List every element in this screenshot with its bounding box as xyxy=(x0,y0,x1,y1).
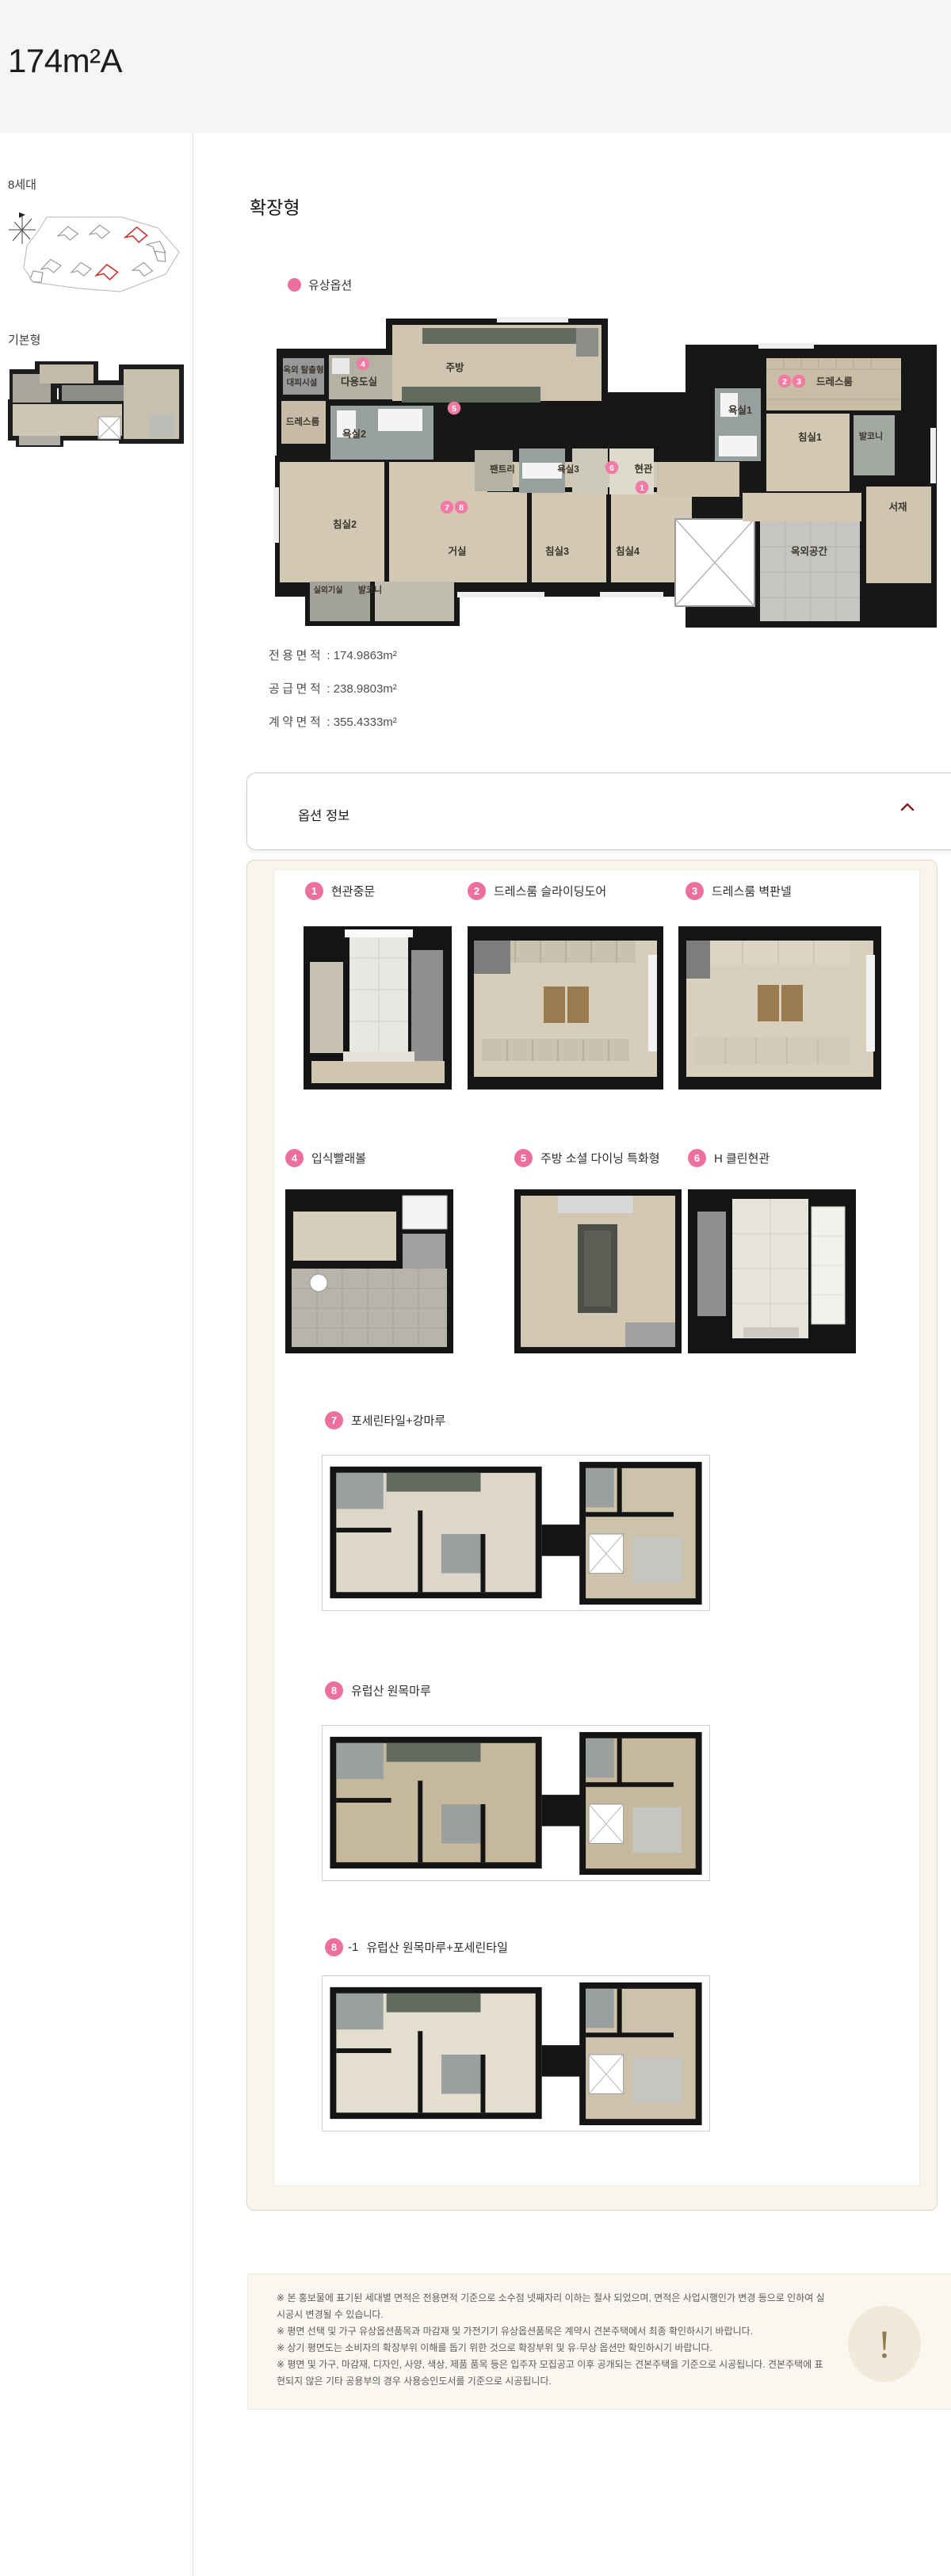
room-label-escape-2: 대피시설 xyxy=(287,377,318,387)
option-label-2: 2드레스룸 슬라이딩도어 xyxy=(468,881,606,900)
option-label-4: 4입식빨래볼 xyxy=(285,1148,366,1167)
plan-type-heading: 확장형 xyxy=(250,193,300,219)
option-label-text: 드레스룸 슬라이딩도어 xyxy=(494,883,606,899)
option-image-5 xyxy=(514,1189,682,1353)
plan-marker-2: 2 xyxy=(778,375,792,388)
room-label-living: 거실 xyxy=(448,545,466,557)
option-label-5: 5주방 소셜 다이닝 특화형 xyxy=(514,1148,660,1167)
room-label-outdoor: 옥외공간 xyxy=(791,545,828,557)
option-number-badge: 1 xyxy=(305,882,323,900)
sidebar-base-label: 기본형 xyxy=(8,331,40,348)
option-number-badge: 4 xyxy=(285,1149,304,1167)
area-value: 355.4333m² xyxy=(334,716,397,729)
area-row-contract: 계약면적 : 355.4333m² xyxy=(269,713,397,730)
option-label-text: H 클린현관 xyxy=(714,1150,770,1166)
room-label-bath2: 욕실2 xyxy=(342,428,366,440)
option-image-1 xyxy=(304,926,452,1090)
svg-text:4: 4 xyxy=(361,360,365,369)
option-label-text: 드레스룸 벽판넬 xyxy=(712,883,792,899)
option-number-badge: 7 xyxy=(325,1411,343,1429)
room-label-bath1: 욕실1 xyxy=(728,404,752,416)
area-label: 계약면적 xyxy=(269,716,323,729)
site-plan-map xyxy=(3,204,187,307)
option-label-text: 유럽산 원목마루+포세린타일 xyxy=(366,1939,508,1956)
area-label: 공급면적 xyxy=(269,682,323,696)
chevron-up-icon[interactable] xyxy=(900,802,915,811)
exclamation-badge: ! xyxy=(848,2306,921,2382)
area-sep: : xyxy=(323,649,334,662)
room-label-bed2: 침실2 xyxy=(333,518,357,530)
plan-marker-5: 5 xyxy=(448,402,461,415)
sidebar-site-label: 8세대 xyxy=(8,176,36,193)
main-floor-plan: 옥외 탈출형 대피시설 다용도실 주방 드레스룸 욕실2 팬트리 욕실3 현관 … xyxy=(267,317,941,628)
disclaimer-line: ※ 평면 선택 및 가구 유상옵션품목과 마감재 및 가전기기 유상옵션품목은 … xyxy=(277,2323,831,2340)
room-label-kitchen: 주방 xyxy=(445,361,464,373)
room-label-bed1: 침실1 xyxy=(798,431,822,443)
option-label-8-1: 8-1유럽산 원목마루+포세린타일 xyxy=(325,1937,508,1956)
disclaimer-line: ※ 평면 및 가구, 마감재, 디자인, 사양, 색상, 제품 품목 등은 입주… xyxy=(277,2357,831,2390)
page-header xyxy=(0,0,951,133)
option-number-badge: 8 xyxy=(325,1938,343,1956)
option-number-badge: 2 xyxy=(468,882,486,900)
svg-text:6: 6 xyxy=(609,464,614,473)
area-value: 238.9803m² xyxy=(334,682,397,696)
plan-marker-3: 3 xyxy=(792,375,806,388)
disclaimer-line: ※ 본 홍보물에 표기된 세대별 면적은 전용면적 기준으로 소수점 넷째자리 … xyxy=(277,2290,831,2323)
paid-option-legend-label: 유상옵션 xyxy=(308,277,352,293)
area-label: 전용면적 xyxy=(269,649,323,662)
svg-text:1: 1 xyxy=(640,483,644,493)
room-label-ac-room: 실외기실 xyxy=(314,585,343,595)
room-label-dress-left: 드레스룸 xyxy=(286,416,320,427)
disclaimer-text: ※ 본 홍보물에 표기된 세대별 면적은 전용면적 기준으로 소수점 넷째자리 … xyxy=(277,2290,831,2390)
option-number-badge: 8 xyxy=(325,1681,343,1700)
area-row-supply: 공급면적 : 238.9803m² xyxy=(269,680,397,696)
area-row-exclusive: 전용면적 : 174.9863m² xyxy=(269,647,397,663)
option-label-8: 8유럽산 원목마루 xyxy=(325,1681,431,1700)
disclaimer-box: ※ 본 홍보물에 표기된 세대별 면적은 전용면적 기준으로 소수점 넷째자리 … xyxy=(247,2273,951,2410)
plan-marker-8: 8 xyxy=(455,501,468,514)
option-label-text: 유럽산 원목마루 xyxy=(351,1682,431,1699)
plan-marker-1: 1 xyxy=(636,481,649,494)
disclaimer-line: ※ 상기 평면도는 소비자의 확장부위 이해를 돕기 위한 것으로 확장부위 및… xyxy=(277,2340,831,2357)
plan-marker-4: 4 xyxy=(357,357,370,371)
room-label-escape-1: 옥외 탈출형 xyxy=(283,364,323,375)
room-label-bed4: 침실4 xyxy=(616,545,640,557)
room-label-utility: 다용도실 xyxy=(341,376,377,387)
base-plan-thumbnail[interactable] xyxy=(3,358,187,452)
option-label-7: 7포세린타일+강마루 xyxy=(325,1410,445,1429)
option-label-text: 입식빨래볼 xyxy=(311,1150,366,1166)
paid-option-dot-icon xyxy=(288,278,301,292)
option-label-3: 3드레스룸 벽판넬 xyxy=(686,881,792,900)
room-label-entry: 현관 xyxy=(634,463,653,475)
area-value: 174.9863m² xyxy=(334,649,397,662)
plan-marker-6: 6 xyxy=(605,461,619,475)
svg-text:3: 3 xyxy=(796,377,801,387)
page-title: 174m²A xyxy=(8,42,122,80)
sidebar-divider xyxy=(193,133,193,2576)
option-label-text: 포세린타일+강마루 xyxy=(351,1412,445,1429)
room-label-bath3: 욕실3 xyxy=(557,464,579,475)
option-label-text: 주방 소셜 다이닝 특화형 xyxy=(540,1150,660,1166)
svg-text:8: 8 xyxy=(459,503,464,513)
paid-option-legend: 유상옵션 xyxy=(288,277,352,293)
room-label-balcony-right: 발코니 xyxy=(859,430,883,441)
area-sep: : xyxy=(323,716,334,729)
option-image-6 xyxy=(688,1189,856,1353)
option-number-badge: 3 xyxy=(686,882,704,900)
page: 174m²A 8세대 기본형 xyxy=(0,0,951,2576)
room-label-study: 서재 xyxy=(888,501,907,513)
option-image-4 xyxy=(285,1189,453,1353)
svg-text:5: 5 xyxy=(452,404,456,414)
option-info-accordion[interactable]: 옵션 정보 xyxy=(246,773,951,850)
option-info-title: 옵션 정보 xyxy=(298,805,349,824)
option-label-6: 6H 클린현관 xyxy=(688,1148,770,1167)
room-label-balcony-bottom: 발코니 xyxy=(358,584,382,595)
option-number-badge: 5 xyxy=(514,1149,533,1167)
area-sep: : xyxy=(323,682,334,696)
option-label-text: 현관중문 xyxy=(331,883,375,899)
plan-marker-7: 7 xyxy=(441,501,454,514)
room-label-dress-right: 드레스룸 xyxy=(816,376,854,387)
svg-text:7: 7 xyxy=(445,503,449,513)
option-number-badge: 6 xyxy=(688,1149,706,1167)
room-label-pantry: 팬트리 xyxy=(490,464,515,475)
option-label-suffix: -1 xyxy=(348,1941,358,1954)
option-image-8 xyxy=(322,1725,710,1881)
option-label-1: 1현관중문 xyxy=(305,881,375,900)
svg-text:2: 2 xyxy=(782,377,787,387)
option-image-8-1 xyxy=(322,1975,710,2131)
option-image-7 xyxy=(322,1455,710,1611)
room-label-bed3: 침실3 xyxy=(545,545,569,557)
option-image-3 xyxy=(678,926,881,1090)
option-image-2 xyxy=(468,926,663,1090)
